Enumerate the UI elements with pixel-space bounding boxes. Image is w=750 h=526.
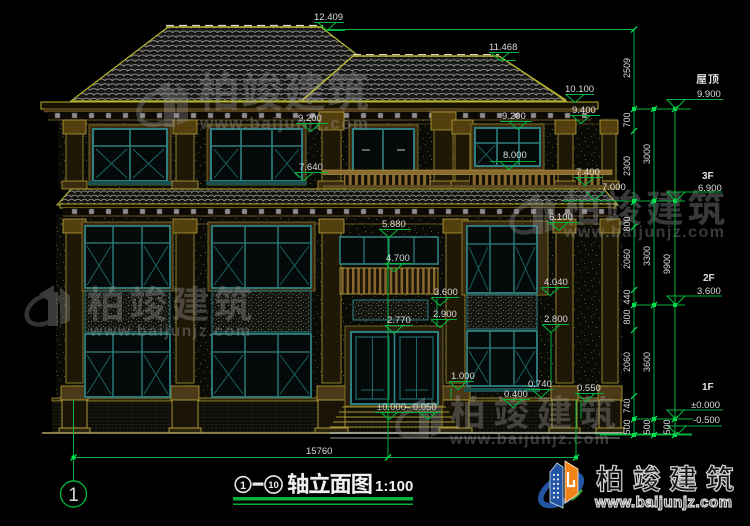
svg-text:10.100: 10.100: [565, 84, 594, 95]
svg-text:11.468: 11.468: [489, 42, 517, 53]
svg-text:9900: 9900: [662, 254, 672, 274]
svg-text:6.100: 6.100: [549, 212, 573, 223]
svg-text:www.baijunjz.com: www.baijunjz.com: [563, 224, 724, 241]
svg-text:www.baijunjz.com: www.baijunjz.com: [89, 323, 250, 340]
svg-text:4.700: 4.700: [386, 253, 410, 264]
svg-text:5.880: 5.880: [382, 219, 406, 230]
svg-text:9.200: 9.200: [298, 113, 322, 124]
svg-text:3.600: 3.600: [697, 286, 721, 297]
svg-text:www.baijunjz.com: www.baijunjz.com: [199, 114, 368, 133]
svg-text:500: 500: [622, 419, 632, 434]
svg-text:500: 500: [642, 419, 652, 434]
svg-text:2060: 2060: [622, 352, 632, 372]
svg-text:7.400: 7.400: [576, 167, 600, 178]
svg-text:1.000: 1.000: [451, 371, 475, 382]
svg-text:800: 800: [622, 309, 632, 324]
svg-text:2F: 2F: [703, 273, 715, 284]
svg-text:6.900: 6.900: [698, 183, 722, 194]
svg-text:0.550: 0.550: [577, 383, 601, 394]
svg-text:440: 440: [622, 289, 632, 304]
svg-text:15760: 15760: [306, 446, 332, 457]
svg-text:10: 10: [268, 480, 279, 491]
svg-text:9.400: 9.400: [572, 105, 596, 116]
svg-text:8.000: 8.000: [503, 150, 527, 161]
svg-text:500: 500: [662, 419, 672, 434]
svg-text:2300: 2300: [622, 156, 632, 176]
svg-text:3300: 3300: [642, 246, 652, 266]
svg-text:740: 740: [622, 398, 632, 413]
svg-text:3000: 3000: [642, 144, 652, 164]
svg-text:800: 800: [622, 216, 632, 231]
svg-text:0.740: 0.740: [528, 379, 552, 390]
svg-text:±0.000: ±0.000: [377, 402, 406, 413]
svg-text:2.900: 2.900: [433, 309, 457, 320]
svg-text:2.770: 2.770: [387, 315, 411, 326]
svg-text:1F: 1F: [702, 382, 714, 393]
svg-text:1:100: 1:100: [375, 478, 413, 495]
svg-text:9.200: 9.200: [502, 111, 526, 122]
svg-text:www.baijunjz.com: www.baijunjz.com: [594, 494, 732, 511]
svg-text:1: 1: [68, 485, 79, 506]
svg-text:1: 1: [240, 480, 246, 492]
svg-text:7.000: 7.000: [602, 182, 626, 193]
svg-text:3F: 3F: [702, 171, 714, 182]
svg-text:7.640: 7.640: [299, 162, 323, 173]
svg-text:3600: 3600: [642, 352, 652, 372]
svg-text:12.409: 12.409: [314, 12, 343, 23]
svg-text:www.baijunjz.com: www.baijunjz.com: [449, 431, 609, 448]
svg-text:2509: 2509: [622, 58, 632, 78]
svg-text:2.800: 2.800: [544, 314, 568, 325]
svg-text:±0.000: ±0.000: [691, 400, 720, 411]
svg-text:9.900: 9.900: [697, 89, 721, 100]
svg-text:700: 700: [622, 112, 632, 127]
svg-text:2060: 2060: [622, 249, 632, 269]
svg-text:-0.500: -0.500: [693, 415, 720, 426]
svg-text:4.040: 4.040: [544, 277, 568, 288]
svg-text:3.600: 3.600: [434, 287, 458, 298]
svg-text:0.400: 0.400: [504, 389, 528, 400]
svg-text:– 0.050: – 0.050: [405, 402, 437, 413]
